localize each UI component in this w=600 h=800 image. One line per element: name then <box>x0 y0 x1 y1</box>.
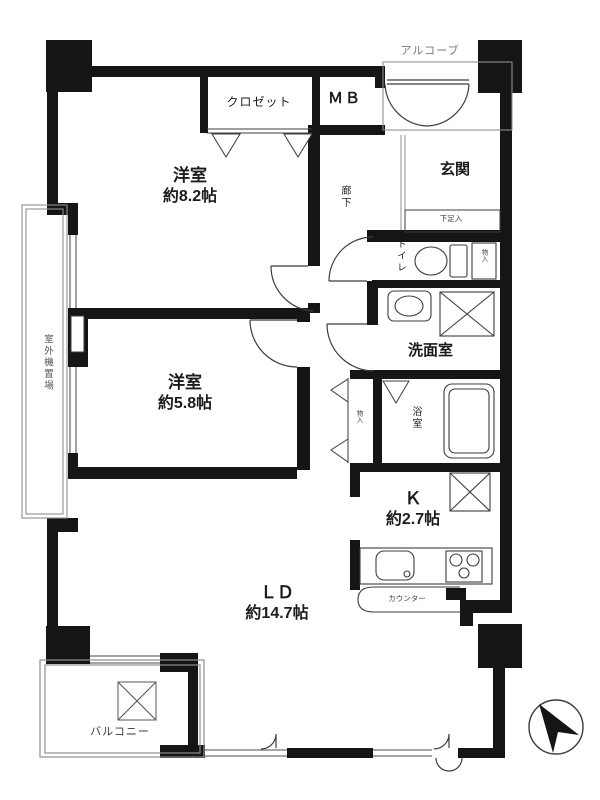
floor-plan: 洋室 約8.2帖 洋室 約5.8帖 ＬＤ 約14.7帖 Ｋ 約2.7帖 玄関 洗… <box>0 0 600 800</box>
toilet-tank-icon <box>450 245 467 277</box>
washbasin-bowl-icon <box>395 296 423 316</box>
label-counter: カウンター <box>365 594 449 604</box>
label-bedroom2: 洋室 約5.8帖 <box>115 372 255 415</box>
storage-folding-door-icon <box>331 439 348 462</box>
pillar-mid-right <box>478 624 522 668</box>
label-living-dining: ＬＤ 約14.7帖 <box>207 582 347 625</box>
door-ld-small-right <box>434 734 462 771</box>
room-name: 洋室 <box>115 372 255 394</box>
label-storage-by-bath: 物入 <box>353 410 363 423</box>
label-washroom: 洗面室 <box>378 341 483 361</box>
door-bedroom1 <box>271 266 313 311</box>
window-ld-left <box>205 750 287 756</box>
pipe-space-box <box>71 316 84 352</box>
bathtub-inner <box>449 389 489 453</box>
pillar-top-right <box>478 40 522 93</box>
compass-icon <box>529 700 583 754</box>
window-bedroom2 <box>70 367 76 453</box>
label-shoe-cabinet: 下足入 <box>409 214 493 224</box>
label-kitchen: Ｋ 約2.7帖 <box>352 488 474 531</box>
room-name: Ｋ <box>352 488 474 510</box>
door-bedroom2 <box>250 320 297 367</box>
window-ld-right <box>373 750 432 756</box>
label-balcony: バルコニー <box>68 725 172 739</box>
room-size: 約2.7帖 <box>352 510 474 531</box>
label-hallway: 廊下 <box>337 185 352 209</box>
kitchen-sink-icon <box>376 551 414 580</box>
label-entrance: 玄関 <box>413 160 497 180</box>
label-toilet: トイレ <box>393 239 407 274</box>
bathtub-icon <box>444 384 494 458</box>
pillar-bottom-left <box>46 626 90 664</box>
window-bedroom1 <box>70 235 76 308</box>
stove-burner <box>459 568 469 578</box>
stove-burner <box>467 554 479 566</box>
room-size: 約8.2帖 <box>120 187 260 208</box>
washing-machine-cross <box>440 292 494 336</box>
floor-plan-drawing <box>0 0 600 800</box>
label-alcove: アルコーブ <box>379 44 481 58</box>
room-name: ＬＤ <box>207 582 347 604</box>
balcony-railing <box>40 660 204 757</box>
entrance-double-door-icon <box>385 80 469 126</box>
toilet-bowl-icon <box>415 247 447 275</box>
room-size: 約14.7帖 <box>207 604 347 625</box>
label-storage-by-toilet: 物入 <box>478 249 488 262</box>
closet-folding-door-icon <box>212 134 240 157</box>
stove-burner <box>450 554 462 566</box>
closet-track <box>207 129 312 133</box>
label-closet: クロゼット <box>207 95 311 111</box>
room-size: 約5.8帖 <box>115 394 255 415</box>
bath-folding-door-icon <box>383 381 409 403</box>
room-name: 洋室 <box>120 165 260 187</box>
label-bedroom1: 洋室 約8.2帖 <box>120 165 260 208</box>
balcony-equipment-icon <box>118 682 156 720</box>
door-washroom <box>327 324 374 371</box>
label-outdoor-unit-space: 室外機置場 <box>40 334 54 392</box>
kitchen-faucet-icon <box>404 571 410 577</box>
door-ld-small-left <box>261 734 276 749</box>
door-toilet <box>329 237 373 281</box>
label-bathroom: 浴室 <box>408 406 423 430</box>
pillar-top-left <box>46 40 92 92</box>
entrance-step-line <box>401 135 405 230</box>
closet-folding-door-icon <box>284 134 312 157</box>
storage-folding-door-icon <box>331 379 348 402</box>
label-meter-box: ＭＢ <box>314 89 376 109</box>
